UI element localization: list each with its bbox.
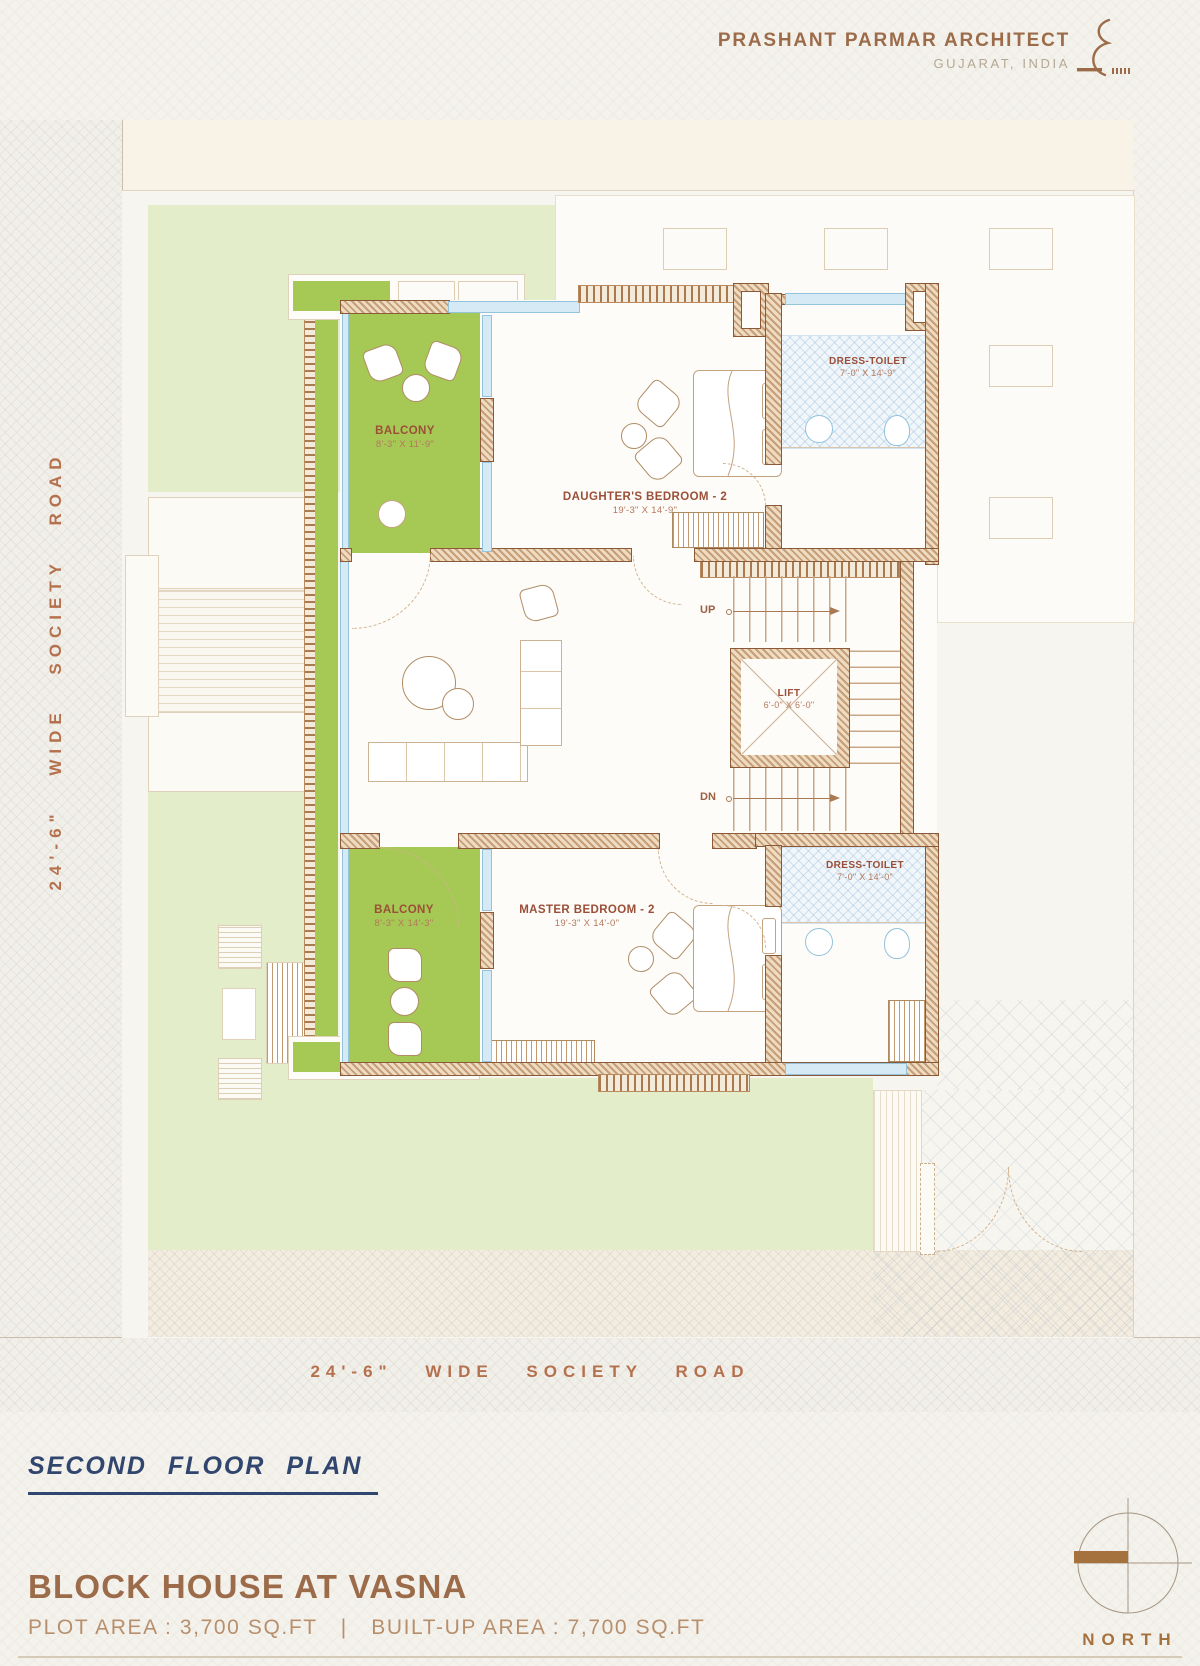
wall-bed2-toilet2-b	[765, 955, 782, 1075]
room-label-master-bedroom: MASTER BEDROOM - 2 19'-3" X 14'-0"	[487, 904, 687, 929]
firm-location: GUJARAT, INDIA	[600, 56, 1070, 71]
bedroom-1-wardrobe	[672, 512, 764, 548]
balcony-1-window-a	[482, 315, 492, 397]
living-planter	[378, 500, 406, 528]
wall-master-top	[458, 833, 660, 849]
skylight-4	[989, 345, 1053, 387]
plan-title-underline	[28, 1492, 378, 1495]
balcony-2-chair-1	[388, 948, 422, 982]
wall-mid-a	[430, 548, 632, 562]
porch-lower-box	[148, 712, 307, 792]
wall-mid-b	[694, 548, 939, 562]
balcony-1-window-b	[482, 462, 492, 552]
stair-dn-arrow	[830, 794, 840, 802]
stair-dn-label: DN	[700, 791, 716, 803]
wall-top-west	[340, 300, 450, 314]
road-label-bottom: 24'-6" WIDE SOCIETY ROAD	[230, 1362, 830, 1384]
toilet-2-partition	[780, 922, 925, 923]
built-up-area: BUILT-UP AREA : 7,700 SQ.FT	[371, 1616, 705, 1639]
room-label-dress-toilet-2: DRESS-TOILET 7'-0" X 14'-0"	[780, 860, 950, 882]
wall-master-top-east	[712, 833, 757, 849]
balcony-2-window-b	[482, 970, 492, 1062]
north-neighbor-strip	[122, 120, 1133, 192]
north-label: NORTH	[1060, 1630, 1200, 1650]
area-line: PLOT AREA : 3,700 SQ.FT | BUILT-UP AREA …	[28, 1616, 705, 1640]
project-title: BLOCK HOUSE AT VASNA	[28, 1568, 468, 1606]
header: PRASHANT PARMAR ARCHITECT GUJARAT, INDIA	[600, 30, 1070, 71]
toilet-1-top-window	[785, 293, 907, 305]
living-sofa-long	[368, 742, 528, 782]
road-label-left: 24'-6" WIDE SOCIETY ROAD	[46, 421, 68, 921]
garden-bench-2	[218, 1058, 262, 1100]
wall-dn-bottom	[755, 833, 939, 847]
room-label-balcony-1: BALCONY 8'-3" X 11'-9"	[305, 425, 505, 450]
wall-east-mid	[900, 560, 914, 847]
toilet-1-partition	[780, 447, 925, 448]
living-table-small	[442, 688, 474, 720]
room-label-balcony-2: BALCONY 8'-3" X 14'-3"	[304, 904, 504, 929]
driveway-crosshatch-upper	[937, 1000, 1133, 1090]
room-label-dress-toilet-1: DRESS-TOILET 7'-0" X 14'-9"	[783, 356, 953, 378]
side-walkway	[873, 1090, 922, 1252]
garden-bottom-strip	[305, 1078, 873, 1250]
skylight-2	[824, 228, 888, 270]
balcony-1-table	[402, 374, 430, 402]
pergola-ticks-bottom	[598, 1074, 750, 1092]
bedroom-2-table	[628, 946, 654, 972]
stair-up-origin	[726, 609, 732, 615]
column-top-1	[733, 283, 769, 337]
wall-mid-west	[340, 548, 352, 562]
toilet-2-wc	[884, 928, 910, 959]
toilet-2-sink	[805, 928, 833, 956]
stair-up-line	[733, 611, 830, 612]
pergola-ticks-top	[578, 285, 735, 303]
firm-name: PRASHANT PARMAR ARCHITECT	[600, 30, 1070, 52]
stair-dn-origin	[726, 796, 732, 802]
balcony-2-table	[390, 987, 419, 1016]
balcony-2-chair-2	[388, 1022, 422, 1056]
wall-bed1-toilet1	[765, 293, 782, 465]
porch-upper-box	[148, 497, 307, 589]
living-sofa-side	[520, 640, 562, 746]
living-west-window	[340, 560, 349, 835]
bedroom-1-top-window	[448, 301, 580, 313]
stair-up-label: UP	[700, 604, 715, 616]
timber-deck	[157, 590, 307, 714]
stair-up-arrow	[830, 607, 840, 615]
toilet-2-tiles	[780, 847, 927, 924]
plan-title: SECOND FLOOR PLAN	[28, 1452, 362, 1481]
garden-bench-1	[218, 925, 262, 969]
garden-table	[222, 988, 256, 1040]
bedroom-1-table	[621, 423, 647, 449]
stair-dn-line	[733, 798, 830, 799]
porch-step	[125, 555, 159, 717]
toilet-1-wc	[884, 415, 910, 446]
gate-post	[920, 1163, 935, 1255]
toilet-2-bottom-window	[785, 1063, 907, 1075]
skylight-5	[989, 497, 1053, 539]
planter-strip-west	[315, 305, 338, 1055]
skylight-1	[663, 228, 727, 270]
floor-plan-sheet: UP DN	[0, 0, 1200, 1666]
wall-east-upper	[925, 283, 939, 565]
balcony-2-railing	[342, 847, 349, 1064]
room-label-lift: LIFT 6'-0" X 6'-0"	[689, 688, 889, 710]
plot-area: PLOT AREA : 3,700 SQ.FT	[28, 1616, 317, 1639]
skylight-3	[989, 228, 1053, 270]
north-compass-icon	[1060, 1498, 1196, 1624]
wall-master-top-west	[340, 833, 380, 849]
balcony-2-window-a	[482, 849, 492, 911]
room-label-daughters-bedroom: DAUGHTER'S BEDROOM - 2 19'-3" X 14'-9"	[545, 491, 745, 516]
area-divider: |	[341, 1616, 348, 1639]
toilet-1-sink	[805, 415, 833, 443]
firm-logo-icon	[1076, 16, 1134, 84]
footer-rule	[18, 1656, 1182, 1658]
toilet-2-wardrobe	[888, 1000, 927, 1062]
bedroom-2-wardrobe	[490, 1040, 595, 1064]
